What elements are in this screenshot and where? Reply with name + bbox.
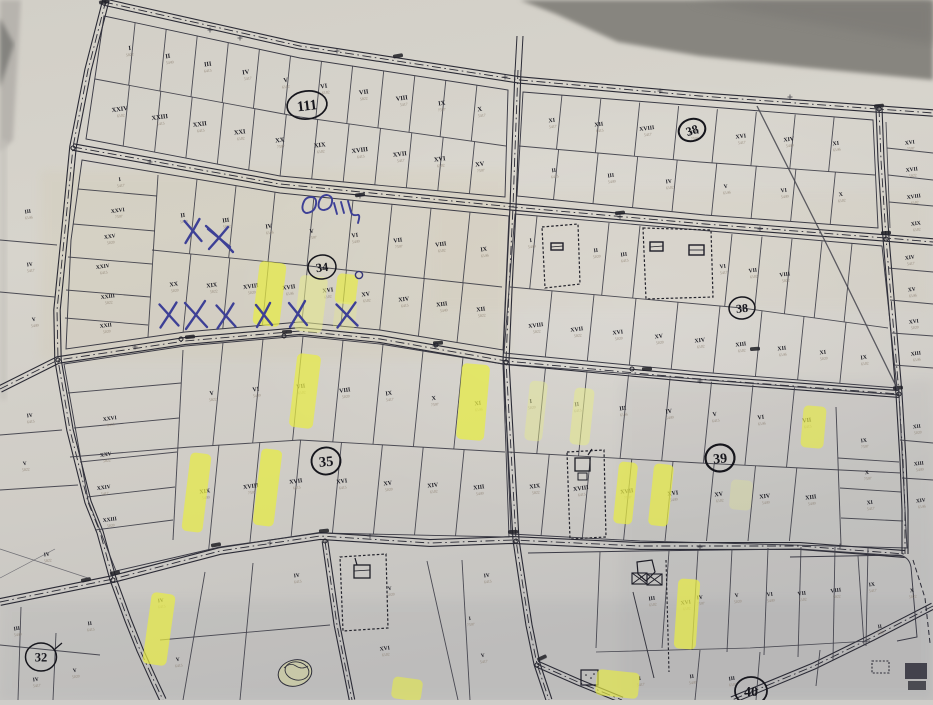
svg-text:IV: IV [483,573,490,580]
svg-text:II: II [87,621,92,628]
svg-text:34: 34 [315,260,330,276]
svg-text:VII: VII [359,88,370,96]
svg-text:XV: XV [908,286,917,293]
svg-text:IX: IX [868,582,875,589]
svg-text:IX: IX [860,438,867,445]
svg-text:V: V [723,184,728,191]
svg-text:IV: IV [26,413,33,420]
svg-text:III: III [13,626,20,633]
svg-text:X: X [838,192,843,199]
svg-text:XV: XV [475,160,485,168]
svg-text:35: 35 [318,454,334,471]
svg-text:III: III [648,596,655,603]
svg-text:VI: VI [766,592,773,599]
svg-text:VII: VII [748,267,757,274]
svg-text:III: III [24,209,31,216]
svg-text:38: 38 [735,301,748,316]
svg-text:IV: IV [293,573,300,580]
svg-text:XX: XX [275,136,285,144]
svg-text:VI: VI [780,188,787,195]
svg-text:39: 39 [713,451,728,467]
svg-text:IV: IV [665,179,672,186]
svg-text:II: II [689,674,694,681]
svg-text:111: 111 [296,97,318,115]
svg-text:III: III [607,173,614,180]
svg-text:II: II [593,248,598,255]
svg-text:IV: IV [32,677,39,684]
svg-text:VII: VII [797,590,806,597]
svg-text:IV: IV [43,552,50,559]
svg-text:V: V [734,593,739,600]
svg-text:40: 40 [744,685,758,700]
svg-text:IV: IV [26,262,33,269]
svg-text:II: II [877,624,882,631]
svg-text:XI: XI [866,500,873,507]
svg-text:32: 32 [35,651,48,665]
svg-text:XII: XII [913,423,922,430]
svg-text:III: III [728,676,735,683]
svg-text:VI: VI [719,264,726,271]
svg-text:III: III [620,252,627,259]
svg-text:II: II [551,168,556,175]
